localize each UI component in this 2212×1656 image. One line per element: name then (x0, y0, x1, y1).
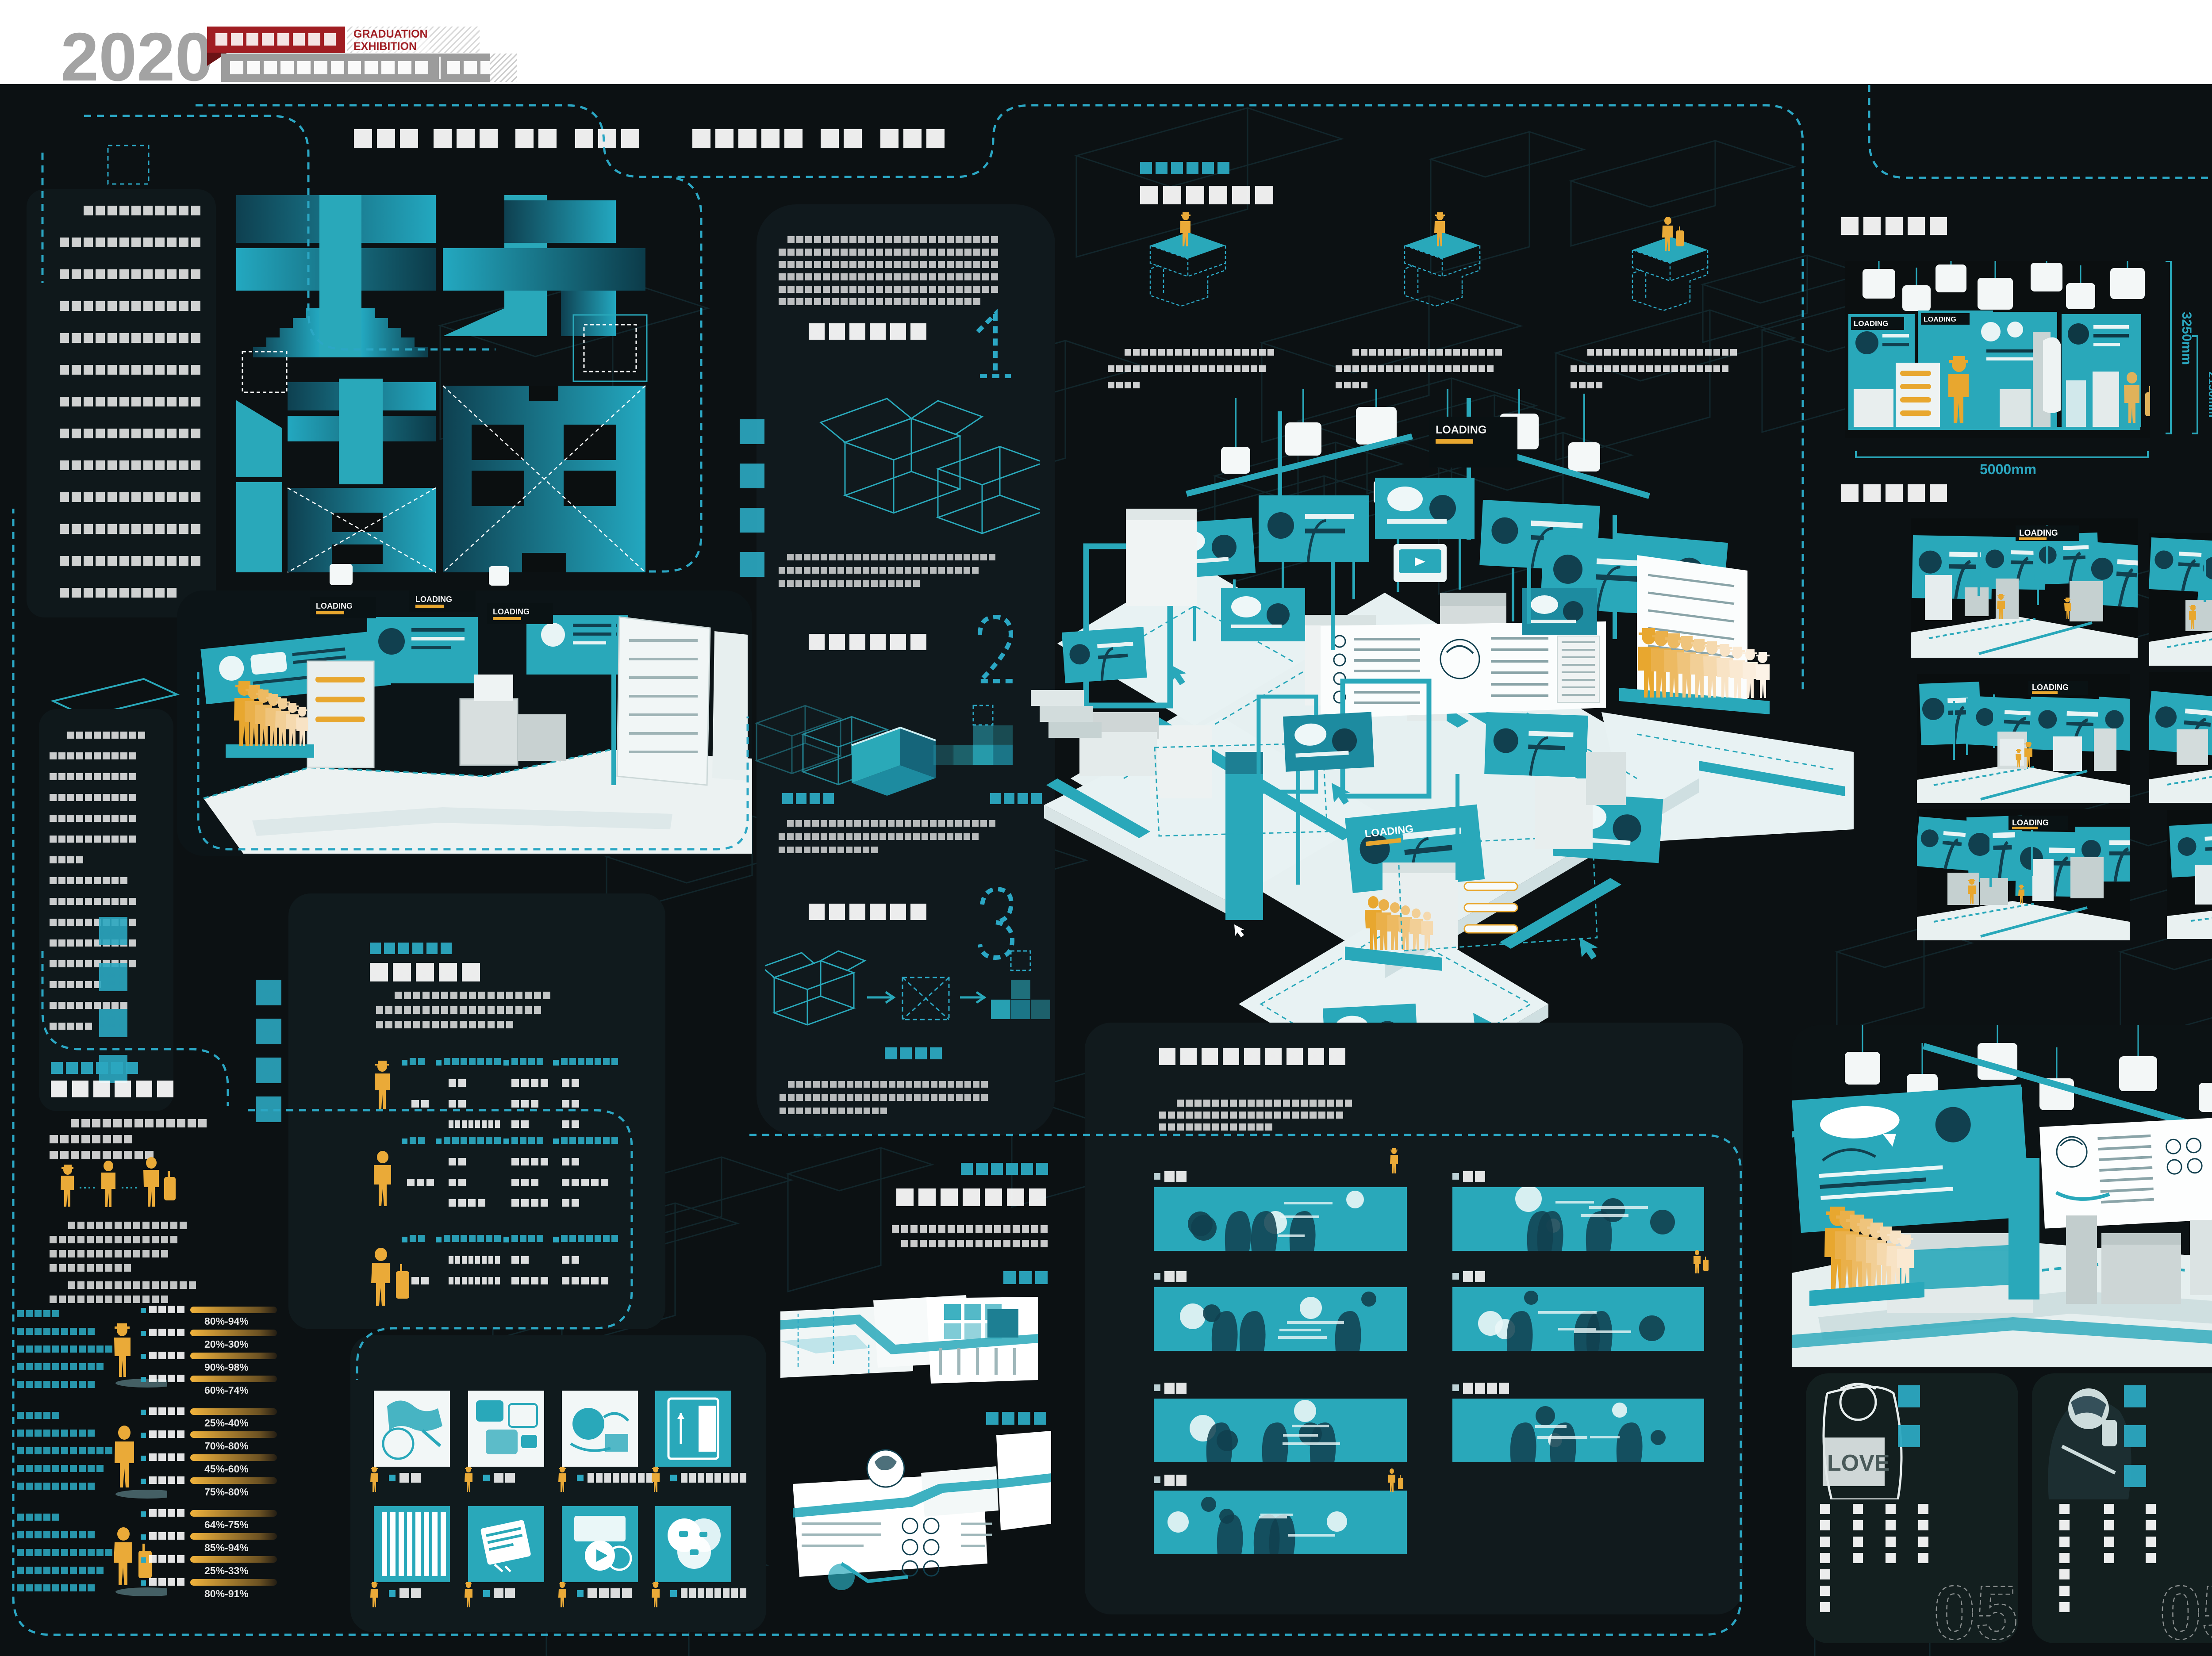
svg-text:5000mm: 5000mm (1980, 461, 2036, 477)
svg-text:LOADING: LOADING (2012, 818, 2049, 827)
svg-text:2150mm: 2150mm (2206, 372, 2212, 418)
svg-text:LOADING: LOADING (1924, 316, 1956, 323)
svg-text:LOADING: LOADING (1436, 424, 1486, 436)
svg-text:LOADING: LOADING (2032, 683, 2069, 692)
svg-text:3250mm: 3250mm (2179, 312, 2194, 365)
svg-text:LOADING: LOADING (1854, 319, 1888, 328)
svg-text:05: 05 (1933, 1570, 2018, 1652)
svg-text:LOVE: LOVE (1827, 1450, 1890, 1476)
svg-text:LOADING: LOADING (2019, 529, 2058, 538)
svg-text:05: 05 (2159, 1570, 2212, 1652)
